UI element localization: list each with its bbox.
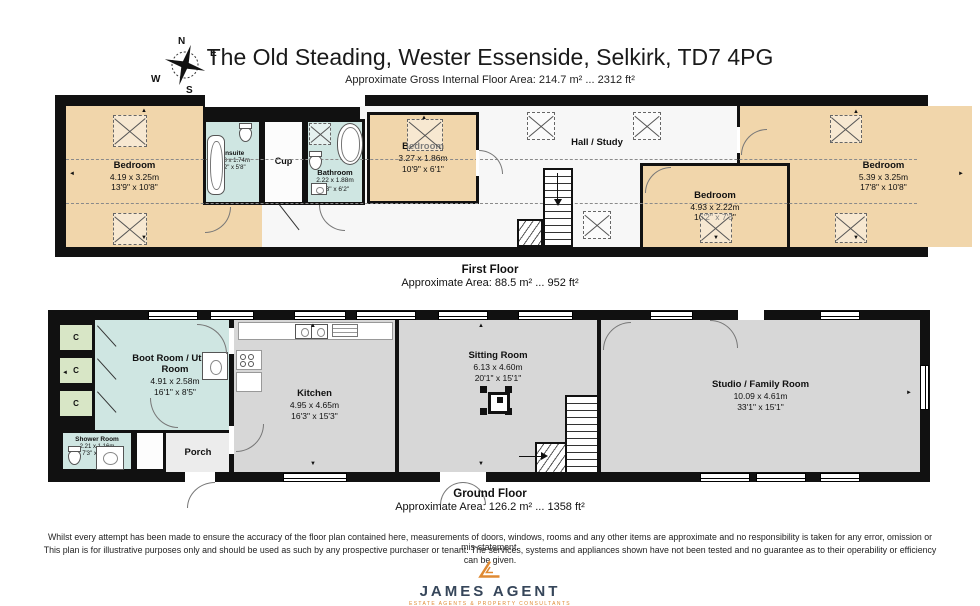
window (920, 365, 929, 410)
door-gap (229, 426, 234, 454)
agency-logo: JAMES AGENT ESTATE AGENTS & PROPERTY CON… (0, 560, 980, 606)
utility-sink-icon (202, 352, 228, 380)
skylight-symbol (830, 115, 862, 143)
appliance-icon (236, 372, 262, 392)
room-kitchen: Kitchen 4.95 x 4.65m 16'3" x 15'3" (234, 320, 395, 472)
room-cupboard-small (134, 430, 166, 472)
interior-wall (395, 320, 399, 386)
door-gap (440, 472, 486, 482)
measure-tick: ► (906, 390, 912, 396)
hob-ring (248, 361, 254, 367)
measure-tick: ▲ (310, 323, 316, 329)
window (650, 311, 693, 320)
room-label: Studio / Family Room 10.09 x 4.61m 33'1"… (681, 379, 841, 412)
door-gap (229, 328, 234, 354)
hob-ring (240, 354, 246, 360)
window (210, 311, 254, 320)
room-label: Bedroom 4.19 x 3.25m 13'9" x 10'8" (110, 160, 159, 193)
window (438, 311, 488, 320)
hall-landing (262, 203, 365, 247)
drainer-icon (332, 324, 358, 337)
measure-tick: ▼ (713, 235, 719, 241)
room-label: Porch (185, 447, 212, 459)
skylight-symbol (633, 112, 661, 140)
measure-tick: ▼ (141, 235, 147, 241)
door-gap (737, 127, 740, 153)
room-cupboard: Cup (262, 119, 305, 205)
building-notch (205, 95, 365, 107)
measure-tick: ◄ (62, 370, 68, 376)
room-label: Sitting Room 6.13 x 4.60m 20'1" x 15'1" (438, 350, 558, 383)
stair-direction-arrow (554, 199, 562, 206)
measure-tick: ▼ (853, 235, 859, 241)
window (518, 311, 573, 320)
hob-ring (240, 361, 246, 367)
stair-winder (517, 219, 543, 247)
skylight-symbol (309, 123, 331, 145)
measure-tick: ▲ (421, 115, 427, 121)
ground-floor-caption: Ground Floor Approximate Area: 126.2 m² … (0, 488, 980, 513)
brand-name: JAMES AGENT (0, 583, 980, 600)
room-cupboard-1: C (57, 322, 95, 353)
measure-tick: ◄ (69, 171, 75, 177)
staircase (565, 395, 597, 472)
interior-wall (597, 352, 601, 472)
skylight-symbol (407, 119, 443, 151)
window (820, 473, 860, 482)
bathtub-icon (337, 123, 363, 165)
room-studio-family-room: Studio / Family Room 10.09 x 4.61m 33'1"… (601, 320, 920, 472)
first-floor-caption: First Floor Approximate Area: 88.5 m² ..… (0, 264, 980, 289)
interior-wall (395, 426, 399, 472)
skylight-symbol (835, 213, 867, 243)
window (756, 473, 806, 482)
room-label: Bedroom 5.39 x 3.25m 17'8" x 10'8" (859, 160, 908, 193)
page-subtitle: Approximate Gross Internal Floor Area: 2… (0, 74, 980, 86)
page-title: The Old Steading, Wester Essenside, Selk… (0, 44, 980, 71)
stair-winder (535, 442, 565, 472)
room-cupboard-3: C (57, 388, 95, 419)
bathtub-icon (207, 135, 225, 195)
logo-triangle-icon (477, 560, 503, 578)
sink-icon (311, 183, 327, 195)
room-porch: Porch (166, 430, 230, 472)
skylight-symbol (527, 112, 555, 140)
staircase (543, 168, 573, 247)
window (294, 311, 346, 320)
shower-tray-icon (96, 446, 124, 470)
stair-direction-line (557, 173, 558, 199)
measure-tick: ▲ (478, 323, 484, 329)
measure-tick: ▼ (310, 461, 316, 467)
window (700, 473, 750, 482)
window (148, 311, 198, 320)
measure-tick: ▲ (853, 109, 859, 115)
ceiling-line (66, 203, 917, 204)
ground-floor-plan: Boot Room / Utility Room 4.91 x 2.58m 16… (48, 310, 930, 482)
hob-ring (248, 354, 254, 360)
skylight-symbol (583, 211, 611, 239)
door-gap (738, 310, 764, 320)
compass-s: S (186, 85, 193, 94)
measure-tick: ▼ (478, 461, 484, 467)
window (283, 473, 347, 482)
floorplan-page: N E S W The Old Steading, Wester Essensi… (0, 0, 980, 606)
window (820, 311, 860, 320)
measure-tick: ▲ (141, 108, 147, 114)
measure-tick: ► (958, 171, 964, 177)
room-label: Kitchen 4.95 x 4.65m 16'3" x 15'3" (290, 388, 339, 421)
stair-direction-arrow (541, 452, 548, 460)
brand-tagline: ESTATE AGENTS & PROPERTY CONSULTANTS (0, 601, 980, 606)
stove-icon (480, 386, 512, 415)
first-floor-plan: Bedroom 4.19 x 3.25m 13'9" x 10'8" Ensui… (55, 95, 928, 257)
window (356, 311, 416, 320)
stair-direction-line (519, 456, 541, 457)
skylight-symbol (113, 115, 147, 147)
oven-icon (236, 350, 262, 370)
door-gap (185, 472, 215, 482)
